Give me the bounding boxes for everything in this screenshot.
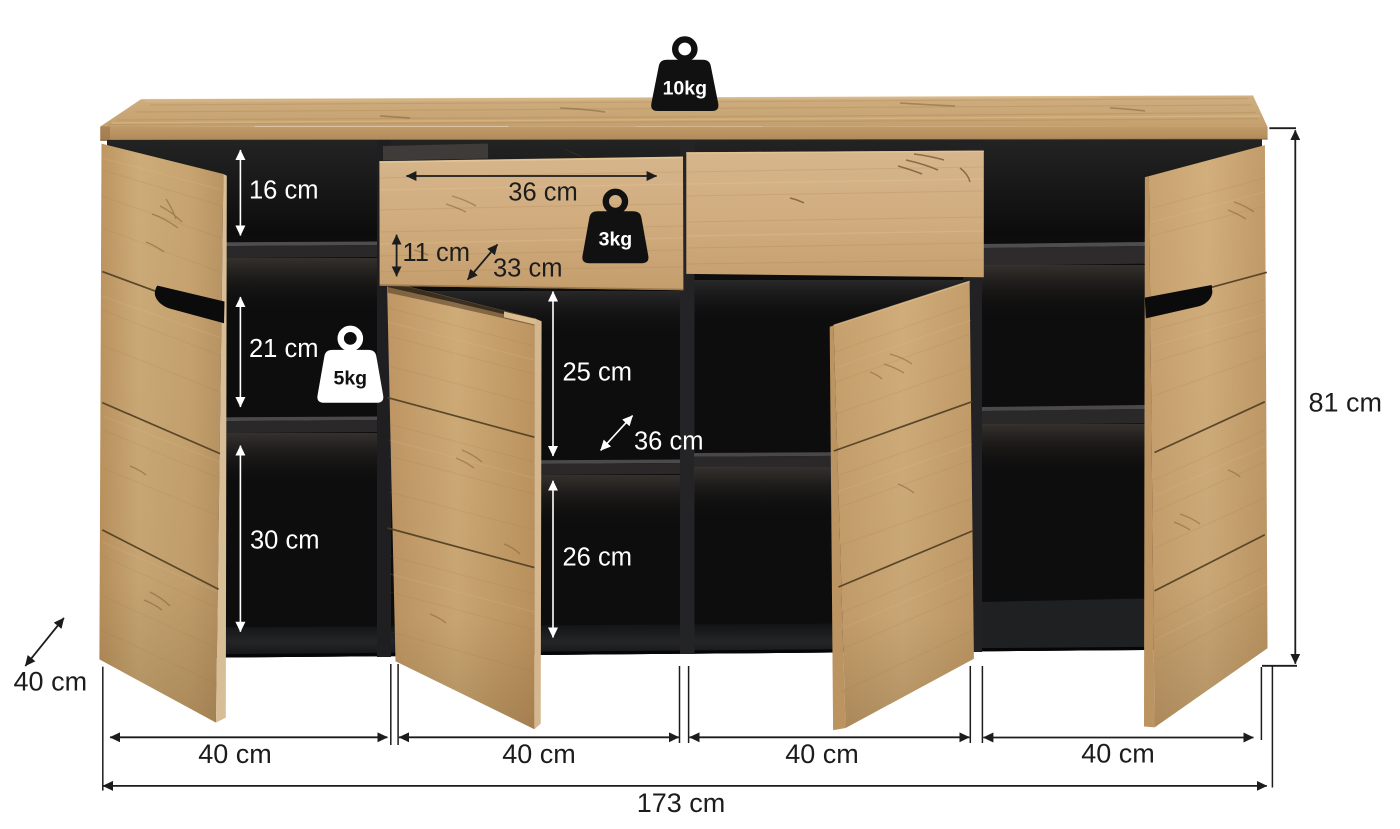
svg-text:30 cm: 30 cm [250, 527, 319, 555]
svg-text:36 cm: 36 cm [508, 178, 577, 206]
svg-text:36 cm: 36 cm [634, 428, 703, 456]
svg-text:21 cm: 21 cm [249, 335, 318, 363]
svg-text:81 cm: 81 cm [1309, 388, 1383, 418]
svg-text:40 cm: 40 cm [198, 739, 272, 769]
svg-text:40 cm: 40 cm [1081, 739, 1155, 769]
svg-text:26 cm: 26 cm [563, 544, 632, 572]
svg-text:10kg: 10kg [663, 78, 707, 100]
svg-text:40 cm: 40 cm [502, 739, 576, 769]
svg-text:25 cm: 25 cm [563, 359, 632, 387]
svg-text:11 cm: 11 cm [403, 239, 471, 267]
svg-text:40 cm: 40 cm [14, 667, 88, 697]
svg-text:40 cm: 40 cm [785, 739, 859, 769]
svg-text:16 cm: 16 cm [249, 177, 318, 205]
svg-text:3kg: 3kg [599, 229, 633, 251]
svg-text:173 cm: 173 cm [637, 788, 726, 818]
svg-text:5kg: 5kg [333, 368, 367, 390]
svg-text:33 cm: 33 cm [493, 254, 562, 282]
